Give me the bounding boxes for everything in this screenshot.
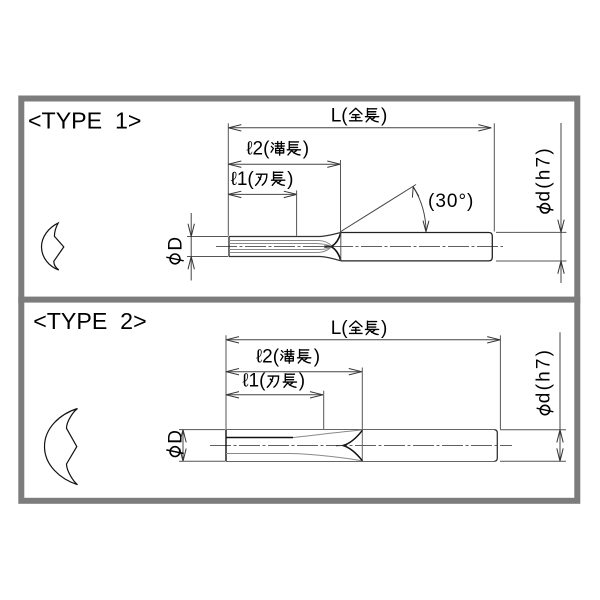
svg-text:(30°): (30°) [428, 191, 474, 212]
svg-text:ℓ1(: ℓ1( [242, 371, 266, 392]
svg-text:L(: L( [331, 105, 349, 126]
svg-text:L(: L( [331, 318, 349, 339]
svg-text:): ) [303, 138, 309, 159]
svg-text:D: D [166, 430, 187, 444]
svg-text:<TYPE 2>: <TYPE 2> [33, 308, 146, 334]
svg-text:ℓ2(: ℓ2( [256, 346, 280, 367]
svg-text:): ) [381, 105, 387, 126]
svg-text:): ) [314, 346, 320, 367]
svg-text:ℓ1(: ℓ1( [231, 169, 255, 190]
svg-text:<TYPE 1>: <TYPE 1> [28, 108, 141, 134]
svg-text:): ) [287, 169, 293, 190]
svg-text:): ) [299, 371, 305, 392]
svg-text:d(h7): d(h7) [534, 348, 555, 403]
svg-text:ℓ2(: ℓ2( [246, 138, 270, 159]
svg-text:): ) [381, 318, 387, 339]
svg-text:d(h7): d(h7) [534, 146, 555, 201]
svg-text:D: D [166, 237, 187, 251]
